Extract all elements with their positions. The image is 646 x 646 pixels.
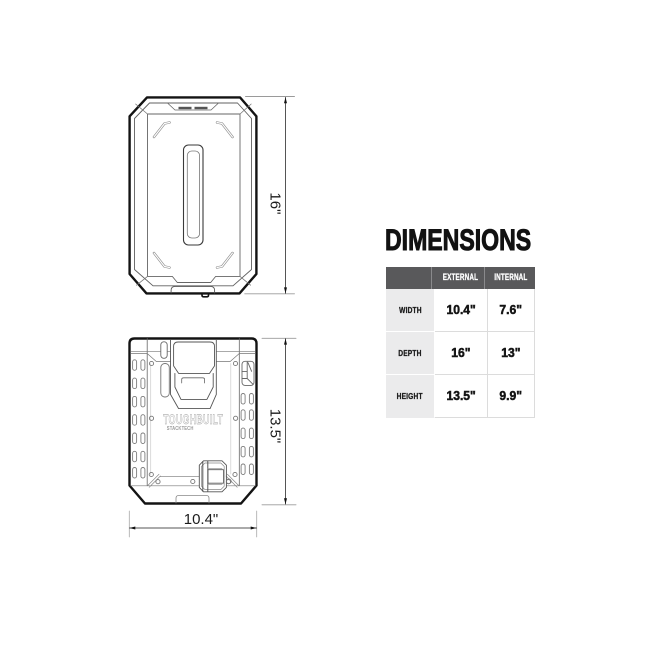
svg-text:STACKTECH: STACKTECH [167,425,194,432]
svg-text:16": 16" [267,192,284,214]
svg-text:13.5": 13.5" [266,409,283,444]
svg-text:10.4": 10.4" [184,511,219,528]
